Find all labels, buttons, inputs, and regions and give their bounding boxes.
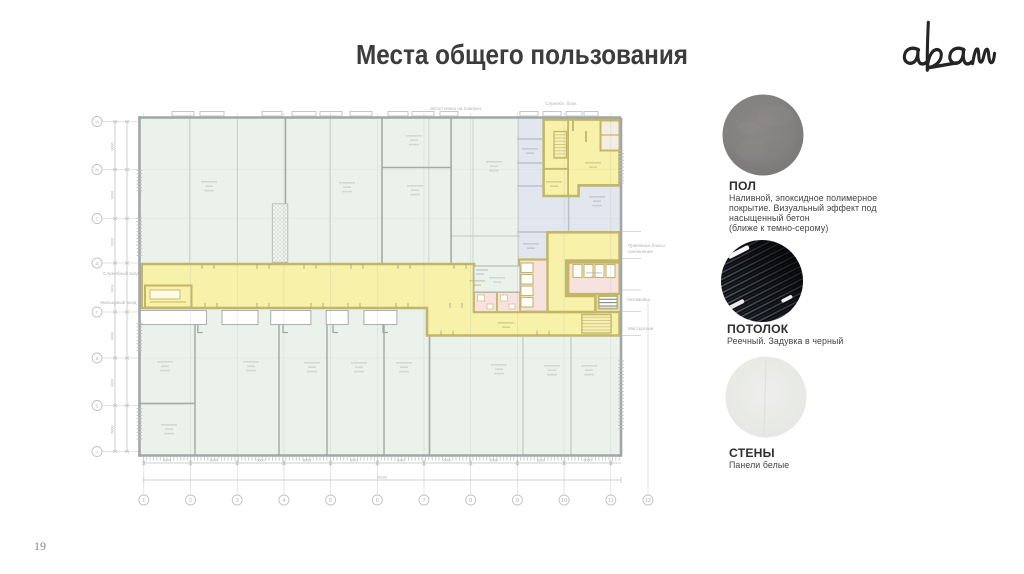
- svg-text:7: 7: [422, 498, 425, 504]
- svg-text:В: В: [95, 356, 98, 361]
- svg-text:6000: 6000: [537, 459, 545, 463]
- svg-text:Е: Е: [95, 216, 98, 221]
- svg-text:8: 8: [469, 498, 472, 504]
- svg-text:12: 12: [645, 498, 651, 504]
- svg-text:6000: 6000: [111, 379, 115, 387]
- svg-text:6000: 6000: [397, 459, 405, 463]
- svg-text:6000: 6000: [111, 238, 115, 246]
- svg-text:6000: 6000: [584, 459, 592, 463]
- svg-text:6000: 6000: [111, 285, 115, 293]
- svg-text:6000: 6000: [111, 426, 115, 434]
- svg-text:Служебный вход: Служебный вход: [103, 270, 139, 276]
- svg-text:6000: 6000: [111, 332, 115, 340]
- svg-text:Б: Б: [95, 403, 98, 408]
- svg-text:66000: 66000: [377, 476, 387, 480]
- svg-text:5: 5: [329, 498, 332, 504]
- svg-text:автостоянка на поверхн.: автостоянка на поверхн.: [430, 106, 482, 111]
- svg-text:6000: 6000: [111, 143, 115, 151]
- svg-text:6000: 6000: [350, 459, 358, 463]
- svg-text:Мастерские: Мастерские: [628, 326, 654, 331]
- svg-text:6000: 6000: [490, 459, 498, 463]
- svg-text:Служебн. блок: Служебн. блок: [545, 101, 577, 106]
- svg-text:Приемные боксы: Приемные боксы: [628, 243, 665, 248]
- svg-text:озеленение: озеленение: [628, 249, 653, 254]
- svg-text:2: 2: [189, 498, 192, 504]
- svg-text:И: И: [95, 119, 98, 124]
- svg-text:6000: 6000: [163, 459, 171, 463]
- svg-text:6: 6: [376, 498, 379, 504]
- svg-text:4: 4: [282, 498, 285, 504]
- svg-text:Жильцовый вход: Жильцовый вход: [100, 299, 137, 305]
- svg-text:1: 1: [142, 498, 145, 504]
- svg-text:6000: 6000: [303, 459, 311, 463]
- svg-text:Автомойка: Автомойка: [627, 296, 650, 302]
- svg-text:11: 11: [608, 498, 614, 504]
- svg-text:6000: 6000: [443, 459, 451, 463]
- svg-text:6000: 6000: [257, 459, 265, 463]
- svg-text:3: 3: [236, 498, 239, 504]
- svg-text:9: 9: [516, 498, 519, 504]
- svg-text:10: 10: [561, 498, 567, 504]
- svg-text:6000: 6000: [210, 459, 218, 463]
- svg-text:6000: 6000: [111, 191, 115, 199]
